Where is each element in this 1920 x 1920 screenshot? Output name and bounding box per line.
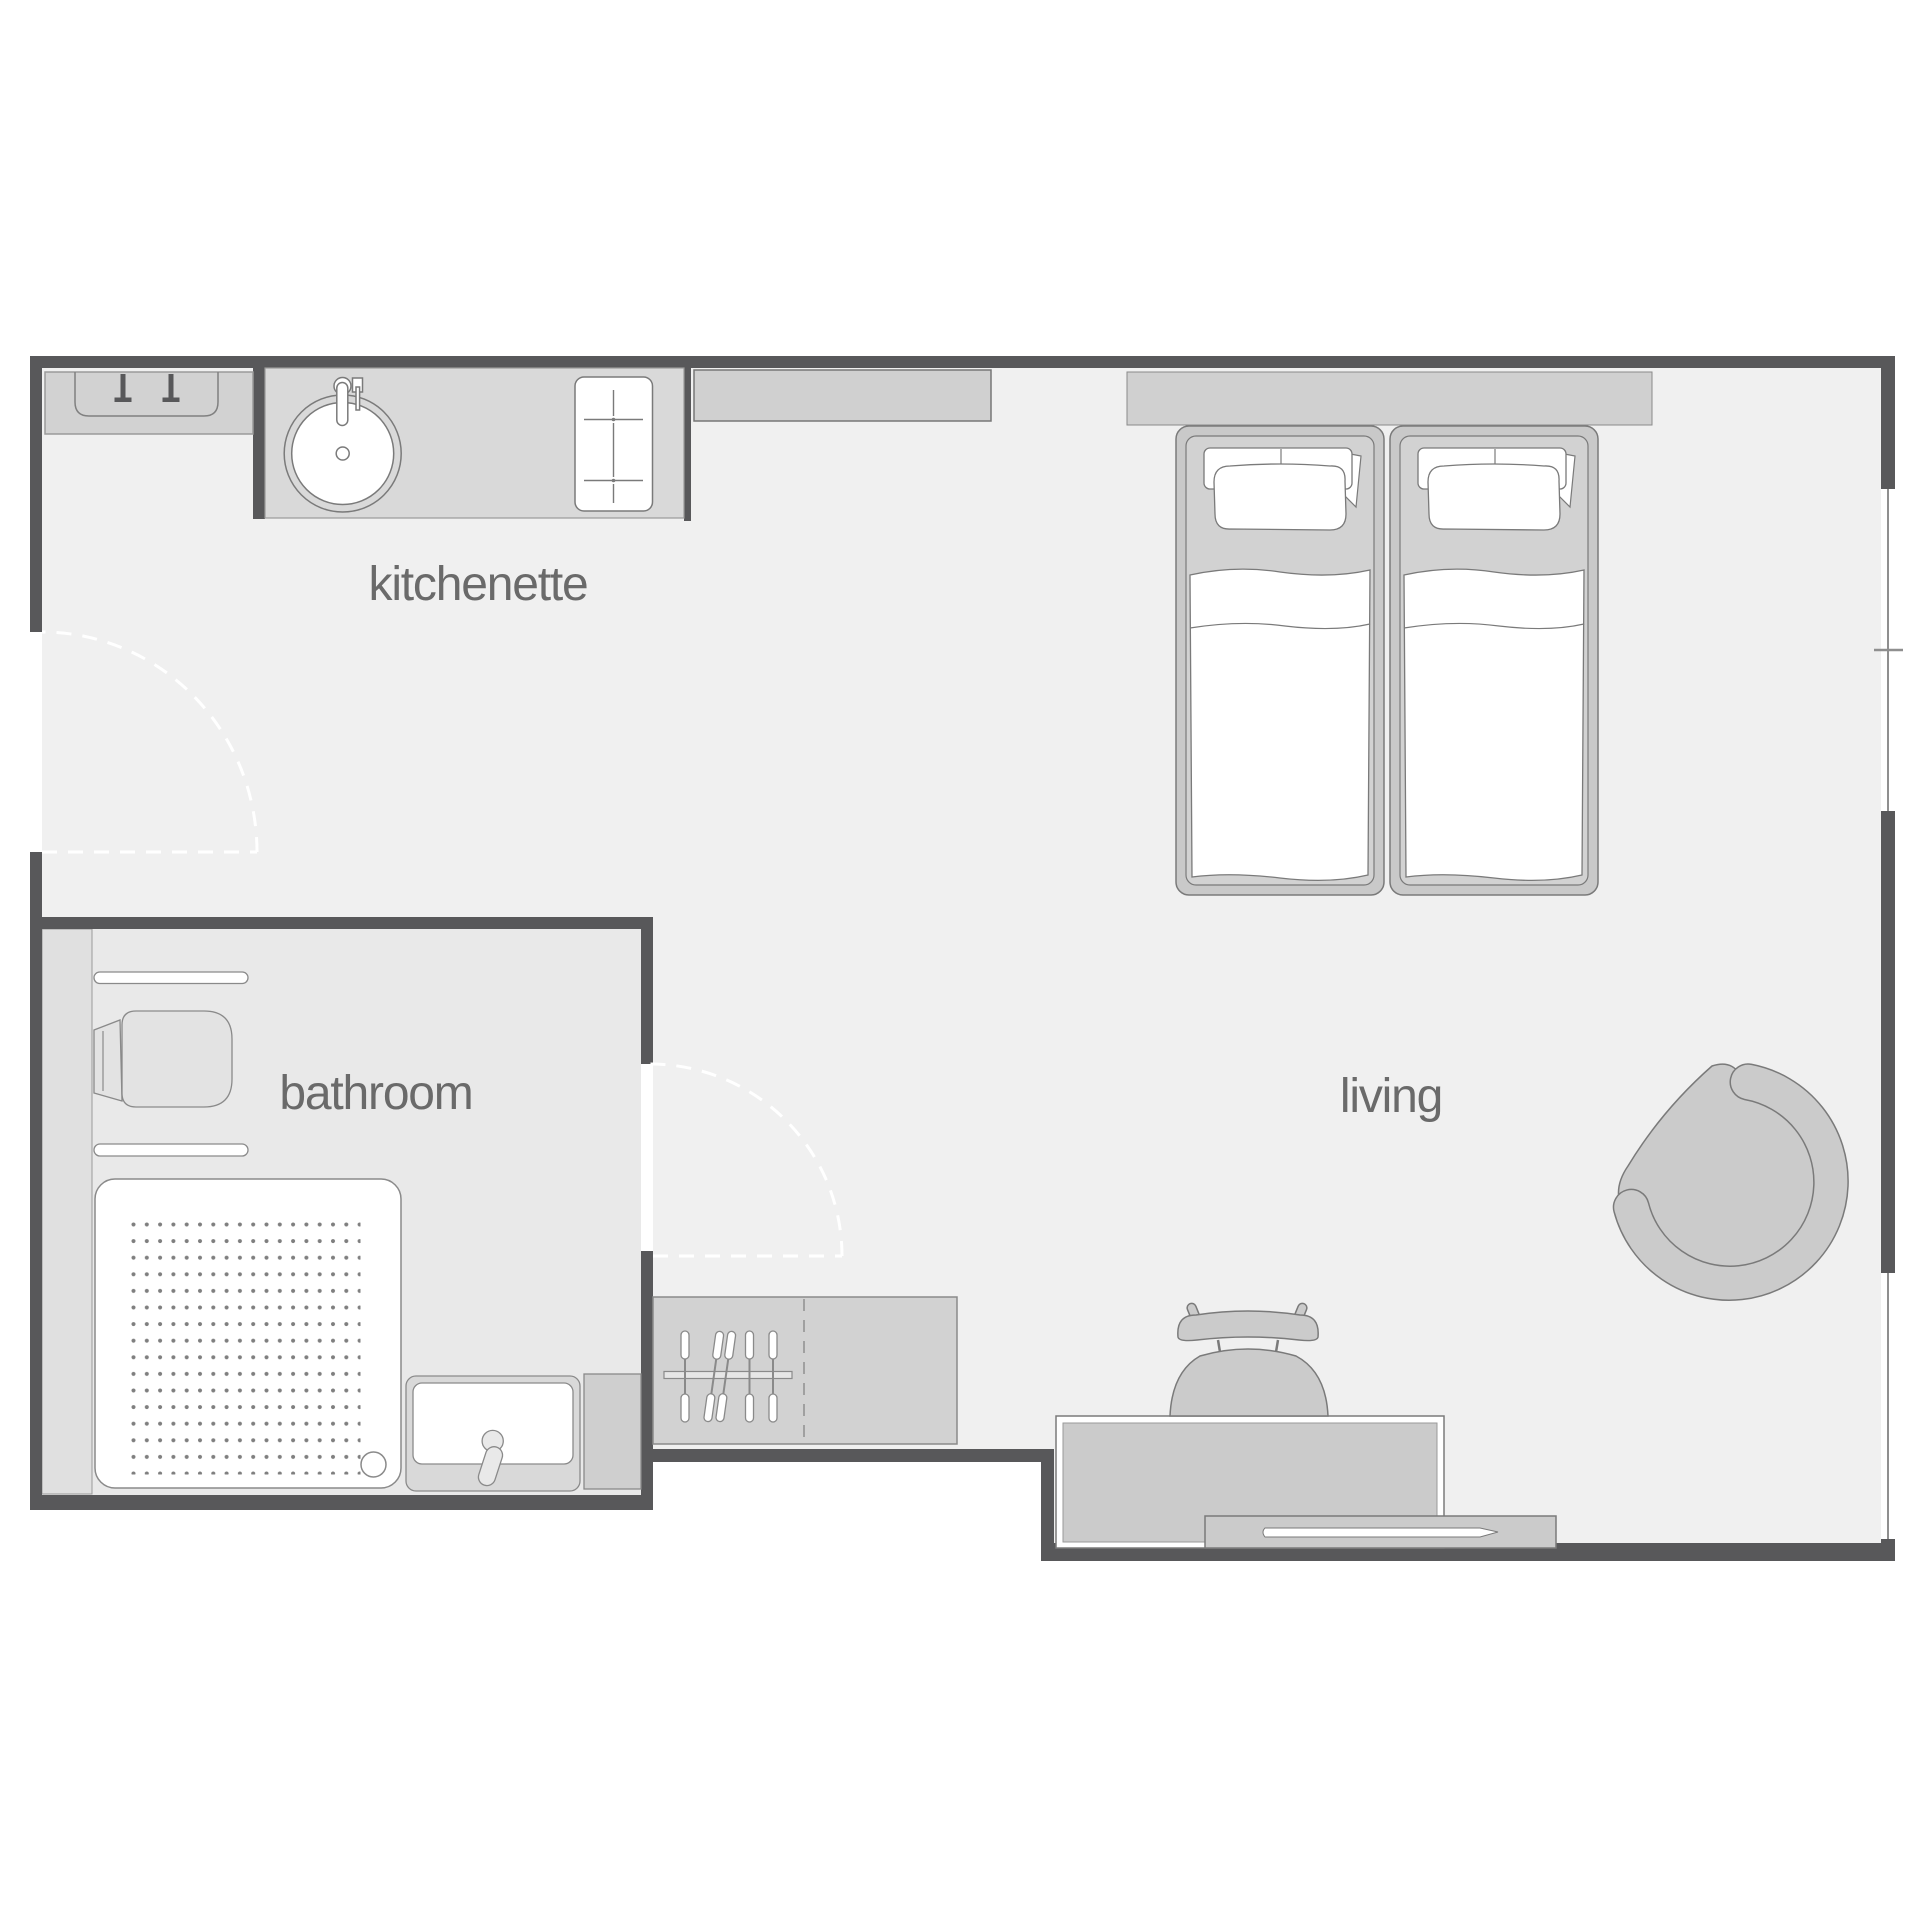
svg-text:living: living [1340, 1070, 1442, 1123]
svg-text:bathroom: bathroom [279, 1067, 472, 1120]
svg-text:kitchenette: kitchenette [369, 558, 588, 611]
